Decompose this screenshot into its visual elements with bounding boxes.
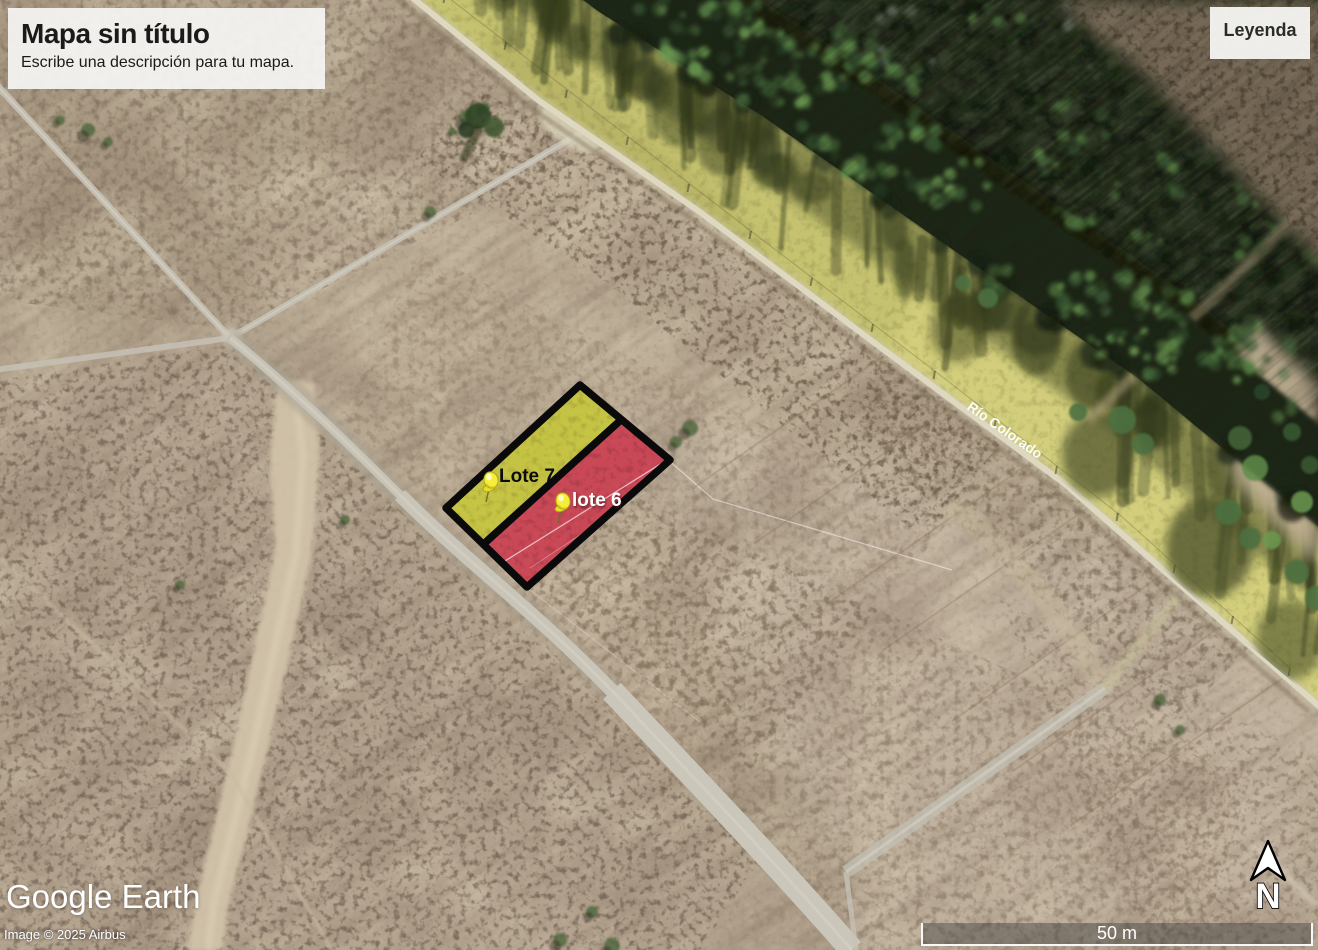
svg-text:Lote 7: Lote 7 [499,466,555,487]
svg-text:lote 6: lote 6 [572,490,622,511]
svg-text:N: N [1255,877,1280,912]
